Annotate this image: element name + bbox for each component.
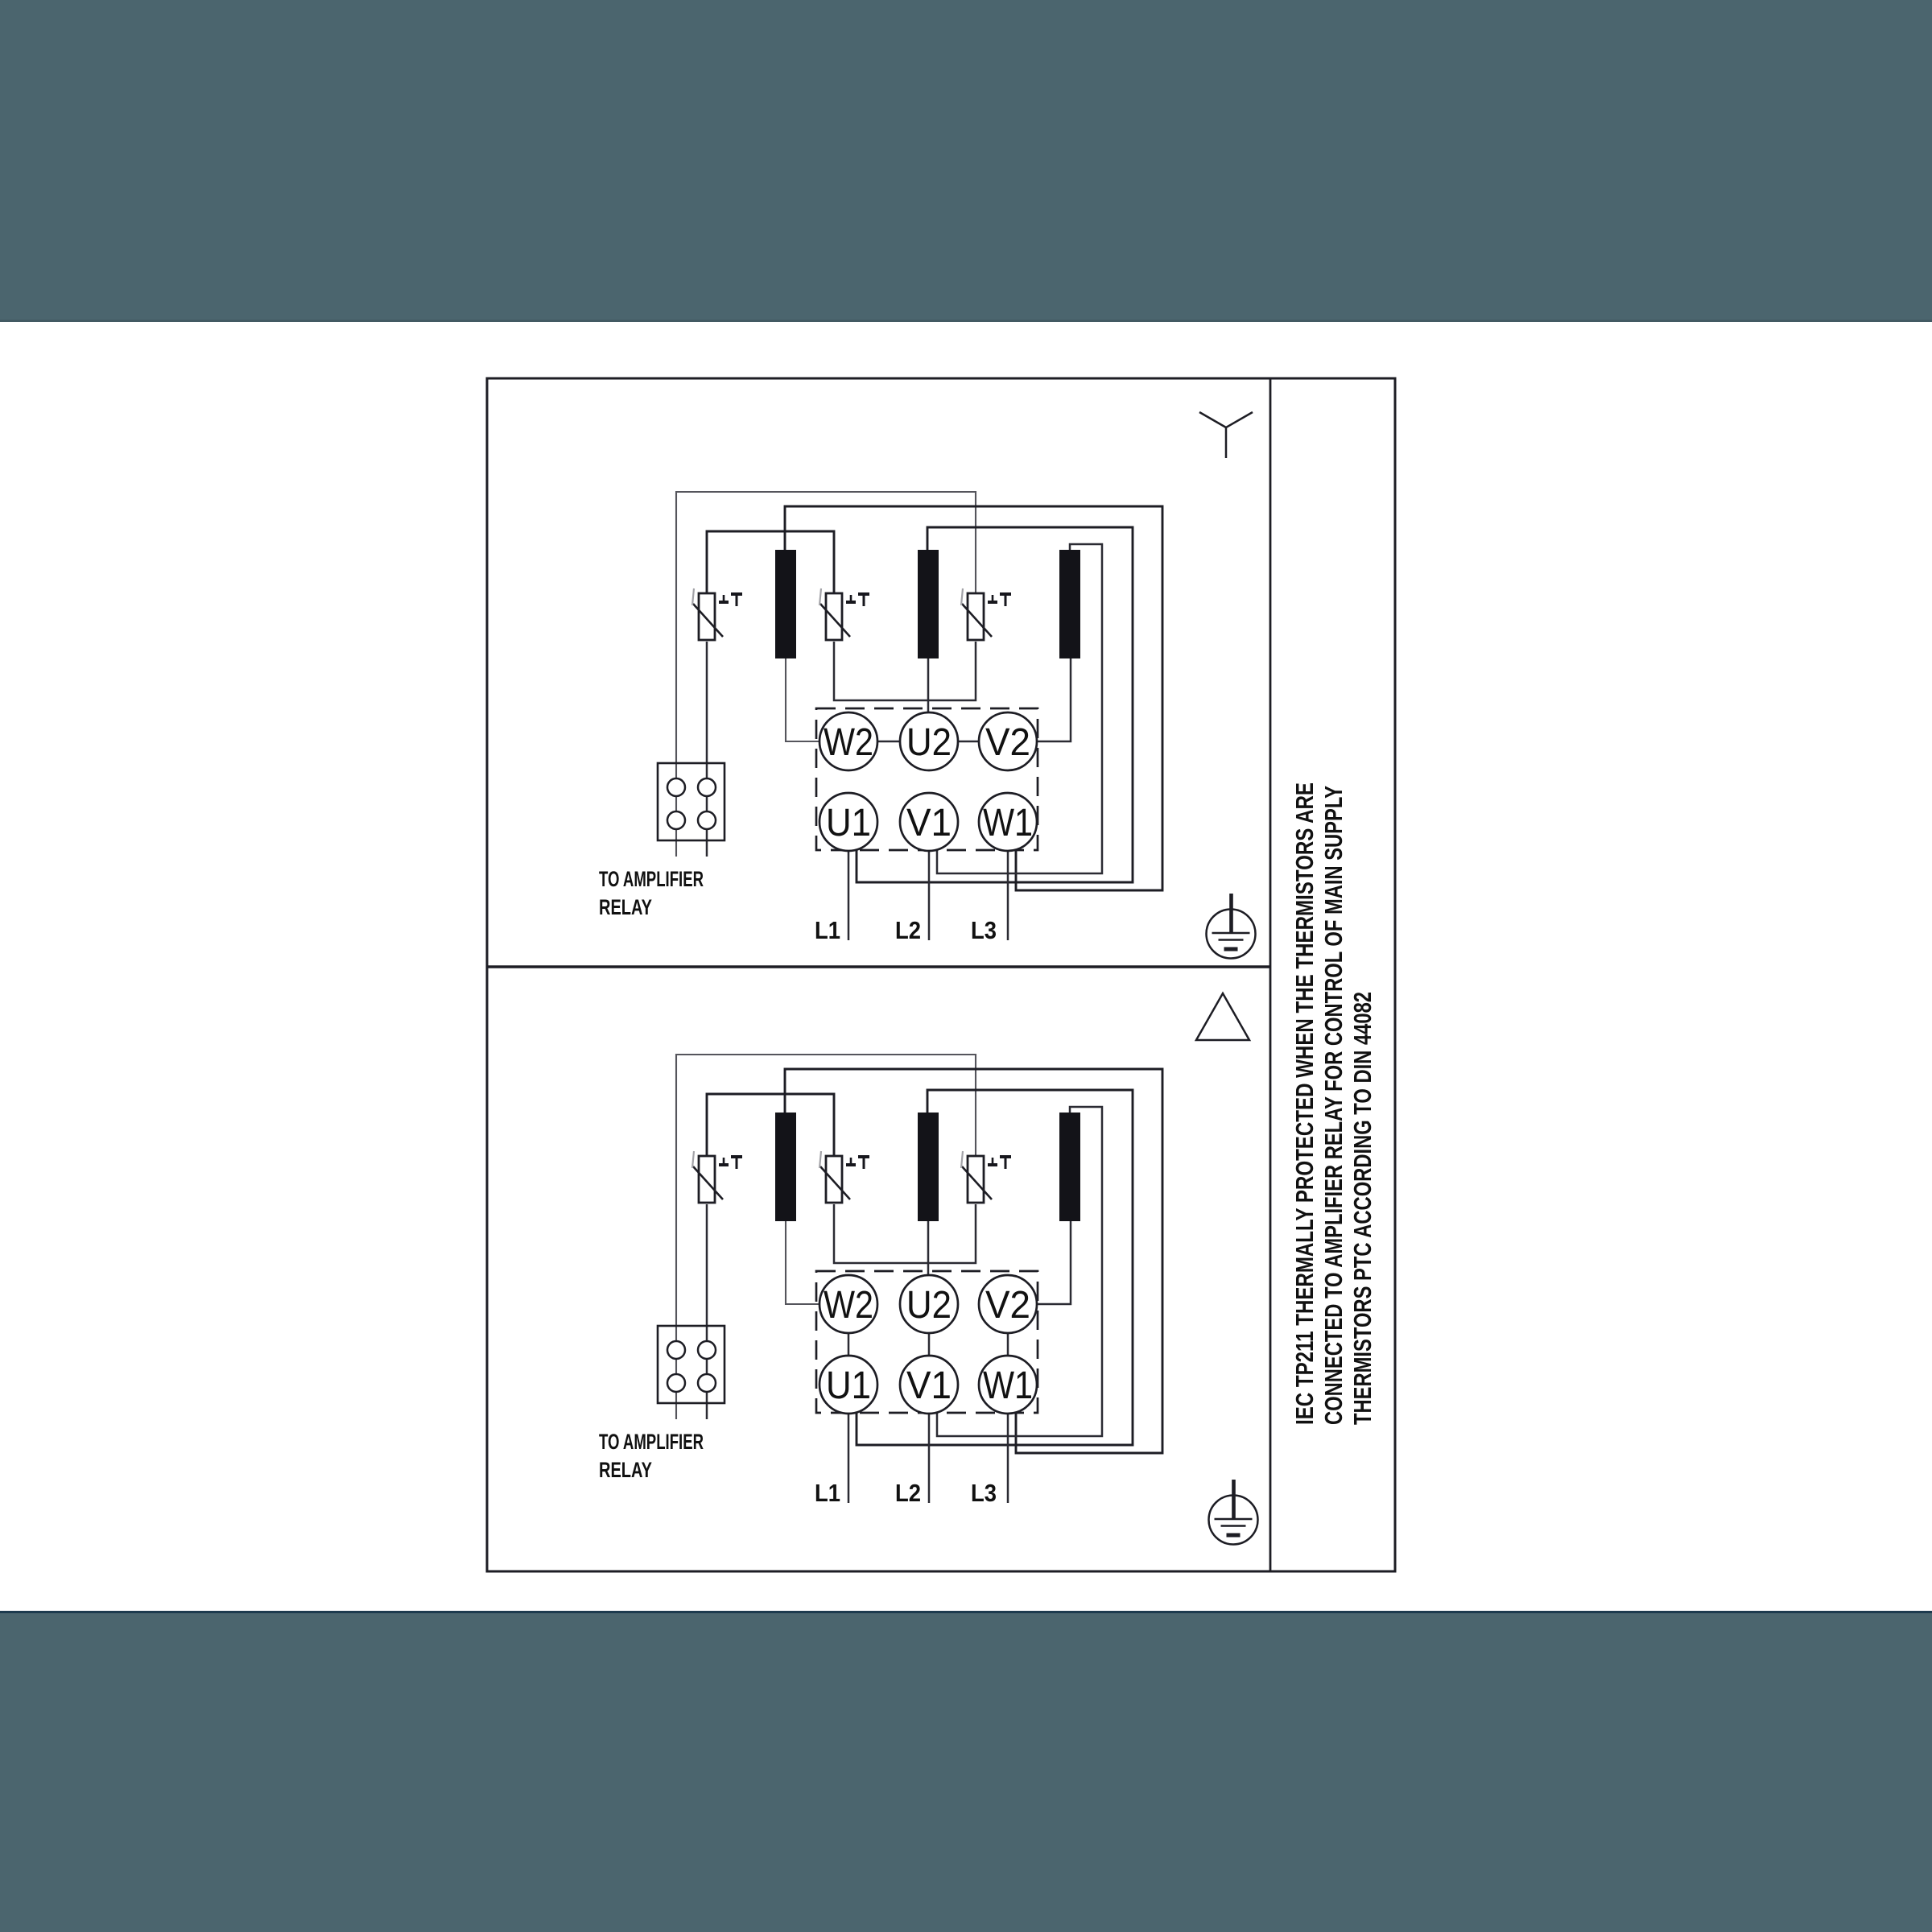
svg-text:RELAY: RELAY: [599, 1458, 652, 1482]
svg-text:V1: V1: [906, 1364, 952, 1407]
svg-text:W1: W1: [983, 1364, 1033, 1407]
svg-text:L1: L1: [815, 916, 840, 944]
svg-text:U1: U1: [826, 1364, 871, 1407]
svg-text:W2: W2: [824, 1284, 873, 1327]
svg-text:U2: U2: [906, 1284, 952, 1327]
svg-text:V2: V2: [985, 721, 1030, 764]
svg-text:U2: U2: [906, 721, 952, 764]
svg-text:V1: V1: [906, 802, 952, 844]
svg-text:TO AMPLIFIER: TO AMPLIFIER: [599, 1430, 704, 1454]
svg-text:L1: L1: [815, 1479, 840, 1507]
svg-text:U1: U1: [826, 802, 871, 844]
svg-text:TO AMPLIFIER: TO AMPLIFIER: [599, 867, 704, 891]
svg-text:W1: W1: [983, 802, 1033, 844]
svg-text:RELAY: RELAY: [599, 895, 652, 919]
svg-text:L2: L2: [895, 1479, 921, 1507]
svg-text:THERMISTORS PTC ACCORDING TO D: THERMISTORS PTC ACCORDING TO DIN 44082: [1348, 992, 1377, 1425]
svg-text:L2: L2: [895, 916, 921, 944]
svg-text:IEC TP211 THERMALLY PROTECTED: IEC TP211 THERMALLY PROTECTED WHEN THE T…: [1290, 782, 1319, 1425]
svg-text:V2: V2: [985, 1284, 1030, 1327]
svg-text:L3: L3: [971, 1479, 997, 1507]
svg-text:W2: W2: [824, 721, 873, 764]
svg-text:CONNECTED TO AMPLIFIER RELAY F: CONNECTED TO AMPLIFIER RELAY FOR CONTROL…: [1319, 786, 1348, 1425]
svg-text:L3: L3: [971, 916, 997, 944]
